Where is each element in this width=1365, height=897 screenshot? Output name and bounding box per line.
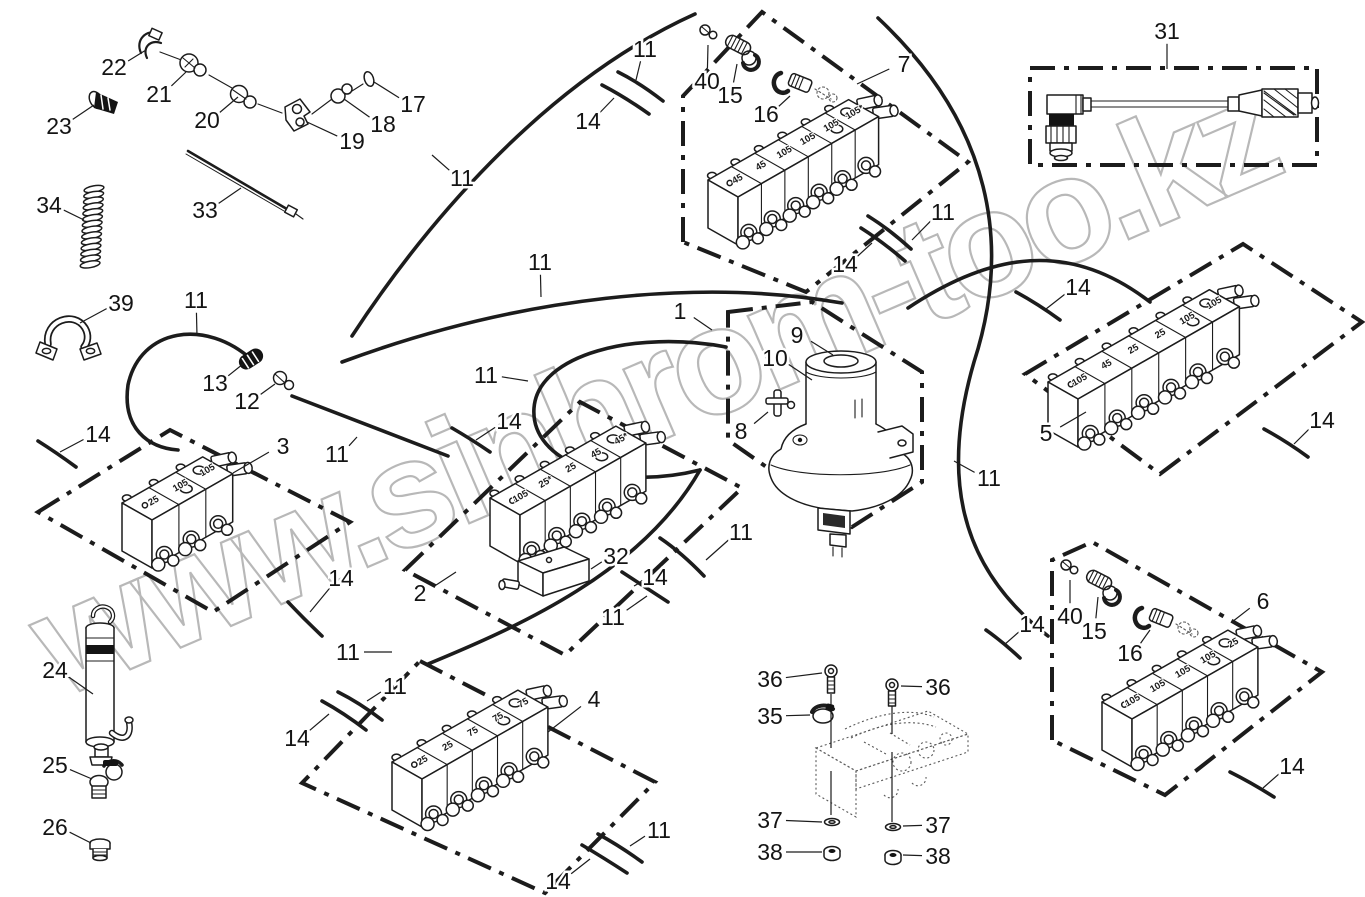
callout-16: 16 [1117, 640, 1143, 666]
cut-hose-mark [38, 441, 76, 467]
leader-line [571, 859, 590, 874]
leader-line [591, 562, 602, 569]
callout-14: 14 [545, 868, 571, 894]
callout-35: 35 [757, 703, 783, 729]
callout-14: 14 [85, 421, 111, 447]
leader-line [367, 692, 381, 701]
part-34-spiral-wrap [80, 184, 105, 269]
leader-line [1096, 597, 1098, 618]
callout-38: 38 [757, 839, 783, 865]
callout-40: 40 [694, 68, 720, 94]
callout-14: 14 [642, 564, 668, 590]
leader-line [734, 64, 737, 83]
leader-line [903, 855, 922, 856]
leader-line [171, 72, 186, 86]
leader-line [786, 673, 822, 678]
leader-line [627, 596, 647, 610]
callout-15: 15 [1081, 618, 1107, 644]
callout-21: 21 [146, 81, 172, 107]
callout-13: 13 [202, 370, 228, 396]
callout-36: 36 [757, 666, 783, 692]
part-38-nut [824, 847, 840, 861]
leader-line [70, 770, 92, 779]
leader-line [1232, 608, 1250, 622]
callout-17: 17 [400, 91, 426, 117]
callout-38: 38 [925, 843, 951, 869]
part-26-plug [90, 839, 110, 861]
leader-line [73, 105, 94, 119]
callout-32: 32 [603, 543, 629, 569]
leader-line [857, 69, 889, 84]
callout-11: 11 [977, 465, 1001, 491]
valve-block-4: 2525757575 [392, 685, 568, 831]
callout-14: 14 [575, 108, 601, 134]
callout-19: 19 [339, 128, 365, 154]
leader-line [630, 836, 645, 846]
callout-7: 7 [898, 51, 911, 77]
cut-hose-mark [986, 630, 1020, 658]
clip-16 [1135, 608, 1149, 628]
callout-34: 34 [36, 192, 62, 218]
callout-14: 14 [1279, 753, 1305, 779]
part-17-oring [362, 70, 375, 87]
callout-8: 8 [735, 418, 748, 444]
leader-line [261, 384, 275, 394]
callout-11: 11 [729, 519, 753, 545]
cut-hose-mark [602, 85, 649, 114]
cut-hose-mark [1264, 429, 1308, 457]
leader-line [220, 97, 238, 112]
callout-24: 24 [42, 657, 68, 683]
callout-3: 3 [277, 433, 290, 459]
callout-14: 14 [284, 725, 310, 751]
callout-14: 14 [1019, 611, 1045, 637]
callout-11: 11 [528, 249, 552, 275]
leader-line [1004, 632, 1019, 645]
callout-39: 39 [108, 290, 134, 316]
callout-14: 14 [832, 251, 858, 277]
callout-12: 12 [234, 388, 260, 414]
callout-4: 4 [588, 686, 601, 712]
callout-37: 37 [925, 812, 951, 838]
part-37-washer [886, 824, 901, 831]
callout-18: 18 [370, 111, 396, 137]
callout-11: 11 [184, 287, 208, 313]
callout-14: 14 [328, 565, 354, 591]
leader-line [1263, 774, 1279, 788]
leader-line [432, 155, 449, 170]
callout-40: 40 [1057, 603, 1083, 629]
leader-line [219, 188, 241, 203]
leader-line [540, 275, 541, 297]
leader-line [903, 825, 922, 826]
leader-line [706, 540, 729, 560]
leader-line [434, 572, 456, 587]
callout-14: 14 [1309, 407, 1335, 433]
callout-37: 37 [757, 807, 783, 833]
callout-6: 6 [1257, 588, 1270, 614]
callout-11: 11 [474, 362, 498, 388]
leader-line [70, 832, 91, 843]
callout-16: 16 [753, 101, 779, 127]
leader-line [196, 313, 197, 336]
callout-11: 11 [336, 639, 360, 665]
parts-diagram-page: www.sinhrom-too.kz 4545105105105105*2510… [0, 0, 1365, 897]
callout-9: 9 [791, 322, 804, 348]
leader-line [344, 99, 370, 117]
leader-line [60, 439, 84, 452]
part-37-washer [825, 819, 840, 826]
callout-20: 20 [194, 107, 220, 133]
part-23-plug [86, 89, 118, 114]
leader-line [600, 98, 614, 113]
callout-15: 15 [717, 82, 743, 108]
part-35-grommet [812, 703, 835, 723]
leader-line [374, 82, 399, 98]
callout-11: 11 [633, 36, 657, 62]
spring-15 [1085, 568, 1114, 591]
part-22-clamp [139, 28, 162, 58]
callout-14: 14 [1065, 274, 1091, 300]
callout-22: 22 [101, 54, 127, 80]
part-19-elbow [285, 99, 310, 131]
callout-1: 1 [674, 298, 687, 324]
callout-26: 26 [42, 814, 68, 840]
leader-line [707, 45, 708, 68]
leader-line [64, 210, 84, 220]
callout-2: 2 [414, 580, 427, 606]
part-36-screw [825, 665, 837, 693]
callout-14: 14 [496, 408, 522, 434]
leader-line [779, 96, 790, 106]
leader-line [636, 61, 641, 80]
part-12-fitting [274, 372, 294, 390]
part-18-fitting [331, 84, 352, 103]
leader-line [310, 714, 329, 730]
leader-line [228, 364, 243, 376]
leader-line [80, 309, 107, 323]
leader-line [786, 715, 810, 716]
part-36-screw [886, 679, 898, 706]
callout-33: 33 [192, 197, 218, 223]
callout-11: 11 [931, 199, 955, 225]
leader-line [1294, 428, 1310, 444]
callout-11: 11 [450, 165, 474, 191]
fitting-chain [86, 28, 375, 219]
callout-10: 10 [762, 345, 788, 371]
leader-line [901, 686, 922, 687]
callout-11: 11 [647, 817, 671, 843]
hose-line [352, 14, 695, 336]
callout-23: 23 [46, 113, 72, 139]
callout-25: 25 [42, 752, 68, 778]
callout-11: 11 [325, 441, 349, 467]
part-38-nut [885, 851, 901, 865]
leader-line [786, 820, 822, 822]
leader-line [307, 122, 337, 136]
callout-31: 31 [1154, 18, 1180, 44]
part-39-clamp [36, 319, 101, 360]
part-21-fitting [180, 54, 206, 76]
callout-36: 36 [925, 674, 951, 700]
leader-line [548, 706, 581, 732]
part-20-union [231, 86, 257, 109]
callout-11: 11 [601, 604, 625, 630]
callout-11: 11 [383, 673, 407, 699]
clip-16 [774, 73, 788, 93]
leader-line [128, 50, 146, 61]
filler-opening [824, 355, 858, 367]
callout-5: 5 [1040, 420, 1053, 446]
